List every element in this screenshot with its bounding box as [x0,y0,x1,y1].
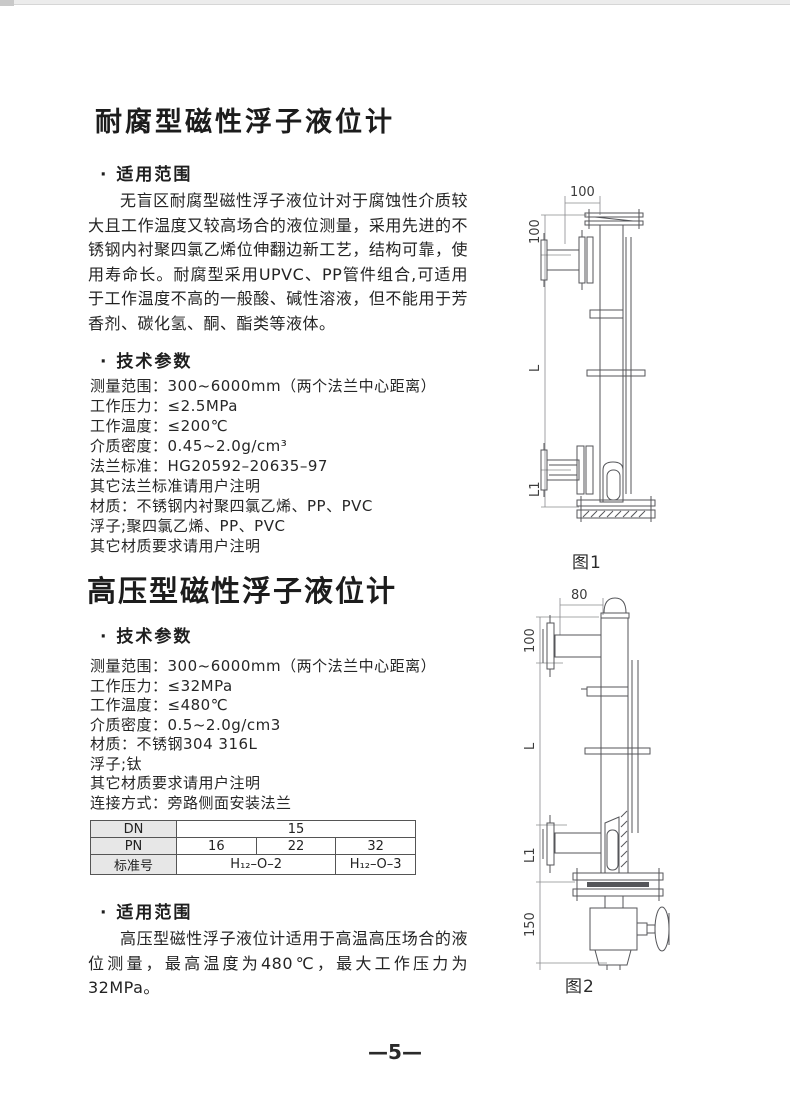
param-line: 介质密度：0.5~2.0g/cm3 [90,716,436,736]
param-line: 材质：不锈钢304 316L [90,735,436,755]
dn-pn-standard-table: DN 15 PN 16 22 32 标准号 H₁₂–O–2 H₁₂–O–3 [90,820,416,875]
param-line: 介质密度：0.45~2.0g/cm³ [90,436,436,456]
table-row: DN 15 [91,821,416,838]
table-header-pn: PN [91,838,177,855]
param-line: 其它法兰标准请用户注明 [90,476,436,496]
figure1-drawing: 100 100 L L1 [515,182,695,546]
param-line: 工作压力：≤32MPa [90,677,436,697]
param-line: 连接方式：旁路侧面安装法兰 [90,794,436,814]
table-cell-pn-32: 32 [336,838,416,855]
param-line: 材质：不锈钢内衬聚四氯乙烯、PP、PVC [90,496,436,516]
fig2-dim-bottom: 150 [523,912,538,937]
table-header-standard: 标准号 [91,855,177,875]
section1-scope-heading: · 适用范围 [100,160,192,185]
param-line: 浮子;钛 [90,755,436,775]
table-cell-dn-value: 15 [177,821,416,838]
table-cell-standard-1: H₁₂–O–2 [177,855,336,875]
table-row: PN 16 22 32 [91,838,416,855]
section2-params-heading: · 技术参数 [100,622,192,647]
table-cell-pn-16: 16 [177,838,257,855]
param-line: 工作温度：≤200℃ [90,416,436,436]
fig2-dim-lower: L1 [523,847,538,863]
fig1-dim-mid: L [528,364,543,372]
param-line: 工作压力：≤2.5MPa [90,396,436,416]
scan-artifact-top-strip [0,0,790,5]
section2-scope-heading: · 适用范围 [100,898,192,923]
figure1-svg: 100 100 L L1 [515,182,695,542]
figure2-caption: 图2 [565,972,595,997]
figure1-caption: 图1 [572,548,602,573]
fig2-dim-upper: 100 [523,628,538,653]
page-number: —5— [0,1040,790,1064]
section1-scope-paragraph: 无盲区耐腐型磁性浮子液位计对于腐蚀性介质较大且工作温度又较高场合的液位测量，采用… [88,189,468,336]
scan-artifact-corner-mark [0,0,14,6]
section1-title: 耐腐型磁性浮子液位计 [95,100,395,139]
fig2-dim-top: 80 [571,588,588,603]
table-row: 标准号 H₁₂–O–2 H₁₂–O–3 [91,855,416,875]
param-line: 测量范围：300~6000mm（两个法兰中心距离） [90,376,436,396]
section1-params-list: 测量范围：300~6000mm（两个法兰中心距离） 工作压力：≤2.5MPa 工… [90,376,436,556]
section2-params-list: 测量范围：300~6000mm（两个法兰中心距离） 工作压力：≤32MPa 工作… [90,657,436,813]
section2-scope-paragraph: 高压型磁性浮子液位计适用于高温高压场合的液位测量，最高温度为480℃，最大工作压… [88,927,468,1001]
fig1-dim-top: 100 [570,185,595,200]
param-line: 其它材质要求请用户注明 [90,774,436,794]
param-line: 其它材质要求请用户注明 [90,536,436,556]
section1-params-heading: · 技术参数 [100,347,192,372]
table-cell-standard-2: H₁₂–O–3 [336,855,416,875]
param-line: 法兰标准：HG20592–20635–97 [90,456,436,476]
param-line: 浮子;聚四氯乙烯、PP、PVC [90,516,436,536]
section2-title: 高压型磁性浮子液位计 [87,568,397,610]
figure2-drawing: 80 100 L L1 150 [515,585,710,974]
param-line: 工作温度：≤480℃ [90,696,436,716]
fig2-dim-mid: L [523,742,538,750]
table-header-dn: DN [91,821,177,838]
table-cell-pn-22: 22 [256,838,336,855]
figure2-svg: 80 100 L L1 150 [515,585,710,970]
param-line: 测量范围：300~6000mm（两个法兰中心距离） [90,657,436,677]
